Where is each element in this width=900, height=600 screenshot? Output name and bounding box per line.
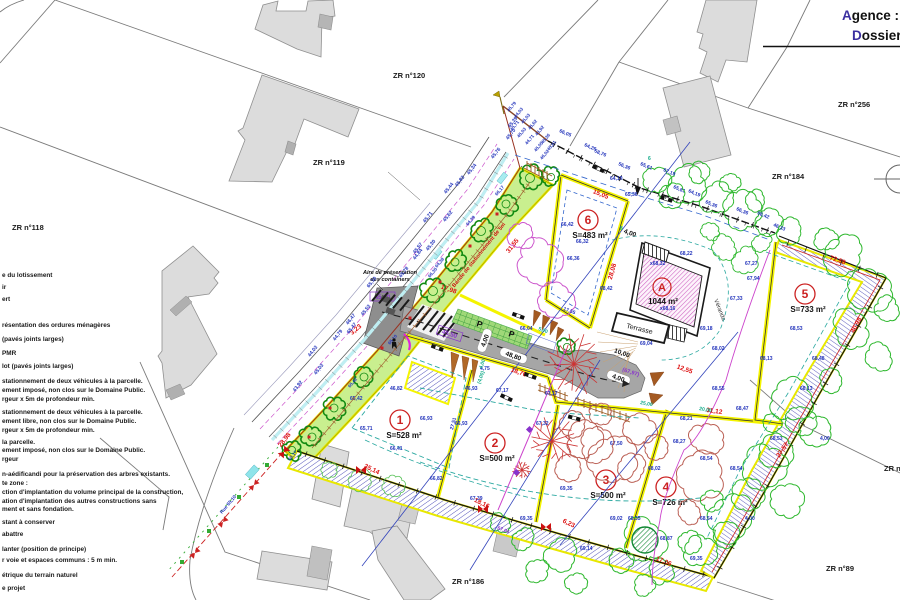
svg-text:abattre: abattre xyxy=(2,531,24,538)
svg-text:(pavés joints larges): (pavés joints larges) xyxy=(2,336,64,343)
svg-text:68,35: 68,35 xyxy=(628,516,641,522)
svg-text:A: A xyxy=(658,282,666,294)
svg-text:n-aédificandi pour la préserva: n-aédificandi pour la préservation des a… xyxy=(2,471,170,478)
svg-text:8: 8 xyxy=(620,226,623,232)
svg-text:stationnement de deux véhicule: stationnement de deux véhicules à la par… xyxy=(2,409,143,416)
svg-text:68,02: 68,02 xyxy=(648,466,661,472)
svg-text:4,00: 4,00 xyxy=(820,436,830,442)
svg-text:lanter (position de principe): lanter (position de principe) xyxy=(2,546,86,553)
svg-text:67,27: 67,27 xyxy=(745,261,758,267)
svg-text:S=528 m²: S=528 m² xyxy=(386,431,422,440)
svg-text:ction d'implantation du volume: ction d'implantation du volume principal… xyxy=(2,489,183,496)
svg-text:e projet: e projet xyxy=(2,585,26,592)
svg-text:la parcelle.: la parcelle. xyxy=(2,439,35,446)
svg-text:x68,32: x68,32 xyxy=(650,261,666,267)
svg-text:66,04: 66,04 xyxy=(520,326,533,332)
svg-text:66,93: 66,93 xyxy=(420,416,433,422)
svg-text:68,55: 68,55 xyxy=(712,386,725,392)
svg-text:6: 6 xyxy=(585,213,592,227)
svg-text:ement imposé, non clos sur le: ement imposé, non clos sur le Domaine Pu… xyxy=(2,447,145,454)
svg-text:69,35: 69,35 xyxy=(690,556,703,562)
svg-text:67,17: 67,17 xyxy=(545,391,558,397)
svg-text:ZR n: ZR n xyxy=(884,464,900,473)
svg-text:ZR n°256: ZR n°256 xyxy=(838,100,870,109)
svg-text:lot (pavés joints larges): lot (pavés joints larges) xyxy=(2,363,73,370)
svg-text:Dossier: Dossier xyxy=(852,28,900,43)
svg-text:66,41: 66,41 xyxy=(390,446,403,452)
svg-text:65,36: 65,36 xyxy=(625,192,638,198)
svg-text:67,32: 67,32 xyxy=(536,421,549,427)
svg-text:69,02: 69,02 xyxy=(610,516,623,522)
svg-text:ZR n°186: ZR n°186 xyxy=(452,577,484,586)
svg-text:66,32: 66,32 xyxy=(576,239,589,245)
svg-text:68,27: 68,27 xyxy=(673,439,686,445)
svg-text:ZR n°184: ZR n°184 xyxy=(772,172,805,181)
svg-text:Aire de présentation: Aire de présentation xyxy=(362,270,418,276)
svg-text:x68,16: x68,16 xyxy=(660,306,676,312)
svg-text:rgeur x 5m de profondeur min.: rgeur x 5m de profondeur min. xyxy=(2,396,95,403)
svg-text:r voie et espaces communs : 5: r voie et espaces communs : 5 m min. xyxy=(2,557,117,564)
svg-text:46,93: 46,93 xyxy=(465,386,478,392)
svg-text:2: 2 xyxy=(492,436,499,450)
svg-text:68,54: 68,54 xyxy=(700,456,713,462)
svg-text:68,02: 68,02 xyxy=(712,346,725,352)
svg-text:68,22: 68,22 xyxy=(680,251,693,257)
svg-text:1: 1 xyxy=(397,413,404,427)
svg-text:ement libre, non clos sur le D: ement libre, non clos sur le Domaine Pub… xyxy=(2,418,136,425)
svg-text:ation d'implantation des autre: ation d'implantation des autres construc… xyxy=(2,498,157,505)
svg-text:65,71: 65,71 xyxy=(360,426,373,432)
svg-text:67,94: 67,94 xyxy=(747,276,760,282)
svg-text:rgeur x 5m de profondeur min.: rgeur x 5m de profondeur min. xyxy=(2,427,95,434)
svg-text:ZR n°119: ZR n°119 xyxy=(313,158,345,167)
svg-text:S=500 m²: S=500 m² xyxy=(479,454,515,463)
svg-text:ment et sans fondation.: ment et sans fondation. xyxy=(2,506,74,513)
svg-text:68,53: 68,53 xyxy=(790,326,803,332)
svg-text:69,35: 69,35 xyxy=(560,486,573,492)
svg-text:67,33: 67,33 xyxy=(730,296,743,302)
svg-text:ZR n°89: ZR n°89 xyxy=(826,564,854,573)
svg-text:PMR: PMR xyxy=(2,350,17,357)
svg-text:ir: ir xyxy=(2,284,7,291)
svg-text:69,18: 69,18 xyxy=(700,326,713,332)
svg-text:68,47: 68,47 xyxy=(736,406,749,412)
svg-text:1044 m²: 1044 m² xyxy=(648,297,678,306)
svg-text:ert: ert xyxy=(2,296,11,303)
svg-text:étrique du terrain naturel: étrique du terrain naturel xyxy=(2,572,78,579)
svg-text:e du lotissement: e du lotissement xyxy=(2,272,53,279)
svg-text:Agence :: Agence : xyxy=(842,8,899,23)
svg-text:te zone :: te zone : xyxy=(2,480,28,487)
svg-text:68,54: 68,54 xyxy=(730,466,743,472)
svg-text:69,35: 69,35 xyxy=(520,516,533,522)
svg-text:68,21: 68,21 xyxy=(680,416,693,422)
svg-text:66,36: 66,36 xyxy=(567,256,580,262)
svg-text:5: 5 xyxy=(802,287,809,301)
svg-text:résentation des ordures ménagè: résentation des ordures ménagères xyxy=(2,322,111,329)
svg-text:stant à conserver: stant à conserver xyxy=(2,519,55,526)
svg-text:69,14: 69,14 xyxy=(580,546,593,552)
svg-text:66,82: 66,82 xyxy=(430,476,443,482)
svg-text:68,42: 68,42 xyxy=(600,286,613,292)
svg-text:46,82: 46,82 xyxy=(390,386,403,392)
svg-text:rgeur: rgeur xyxy=(2,456,19,463)
svg-text:68,54: 68,54 xyxy=(700,516,713,522)
svg-text:68,13: 68,13 xyxy=(800,386,813,392)
svg-text:68,48: 68,48 xyxy=(812,356,825,362)
svg-text:S=500 m²: S=500 m² xyxy=(590,491,626,500)
svg-text:S=733 m²: S=733 m² xyxy=(790,305,826,314)
svg-text:68,53: 68,53 xyxy=(770,436,783,442)
svg-text:ement imposé, non clos sur le: ement imposé, non clos sur le Domaine Pu… xyxy=(2,387,145,394)
svg-text:67,39: 67,39 xyxy=(470,496,483,502)
svg-text:4,00: 4,00 xyxy=(745,516,755,522)
svg-text:6: 6 xyxy=(648,156,651,162)
svg-text:68,87: 68,87 xyxy=(660,536,673,542)
svg-text:ZR n°118: ZR n°118 xyxy=(12,223,44,232)
svg-text:67,17: 67,17 xyxy=(496,388,509,394)
svg-text:68,13: 68,13 xyxy=(760,356,773,362)
svg-text:69,04: 69,04 xyxy=(640,341,653,347)
svg-text:ZR n°120: ZR n°120 xyxy=(393,71,425,80)
svg-text:stationnement de deux véhicule: stationnement de deux véhicules à la par… xyxy=(2,378,143,385)
svg-text:66,42: 66,42 xyxy=(561,222,574,228)
